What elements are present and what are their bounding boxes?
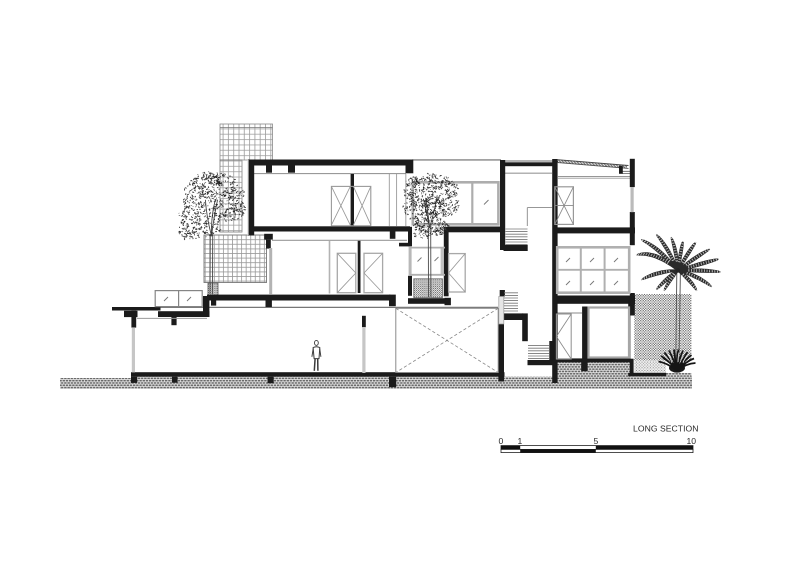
svg-text:0: 0 [499, 436, 504, 446]
svg-text:1: 1 [518, 436, 523, 446]
svg-text:10: 10 [687, 436, 697, 446]
svg-text:LONG SECTION: LONG SECTION [633, 424, 699, 434]
svg-text:5: 5 [594, 436, 599, 446]
